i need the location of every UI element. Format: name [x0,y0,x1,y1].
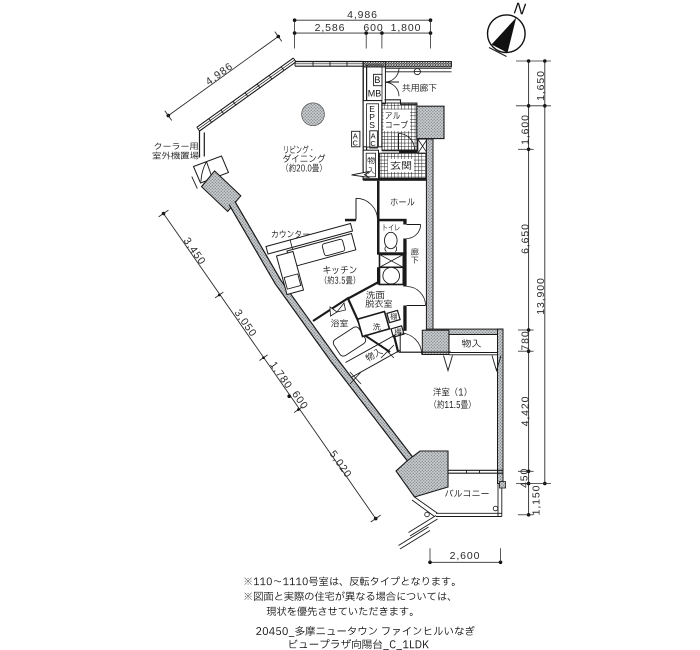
svg-text:780: 780 [520,330,532,350]
svg-text:1,800: 1,800 [391,22,422,34]
svg-text:C: C [370,139,376,148]
svg-text:1,650: 1,650 [535,70,547,101]
svg-text:600: 600 [363,22,383,34]
svg-text:1,600: 1,600 [520,114,532,145]
svg-text:450: 450 [519,468,531,488]
svg-text:MB: MB [368,89,382,99]
svg-text:4,986: 4,986 [347,9,378,21]
svg-text:2,600: 2,600 [450,550,481,562]
svg-text:6,650: 6,650 [520,223,532,254]
svg-text:B: B [374,75,381,85]
svg-text:1,150: 1,150 [531,485,543,516]
svg-text:S: S [369,120,376,130]
svg-text:4,420: 4,420 [520,396,532,427]
svg-text:2,586: 2,586 [315,22,346,34]
svg-text:13,900: 13,900 [535,277,547,315]
svg-text:C: C [353,139,359,148]
